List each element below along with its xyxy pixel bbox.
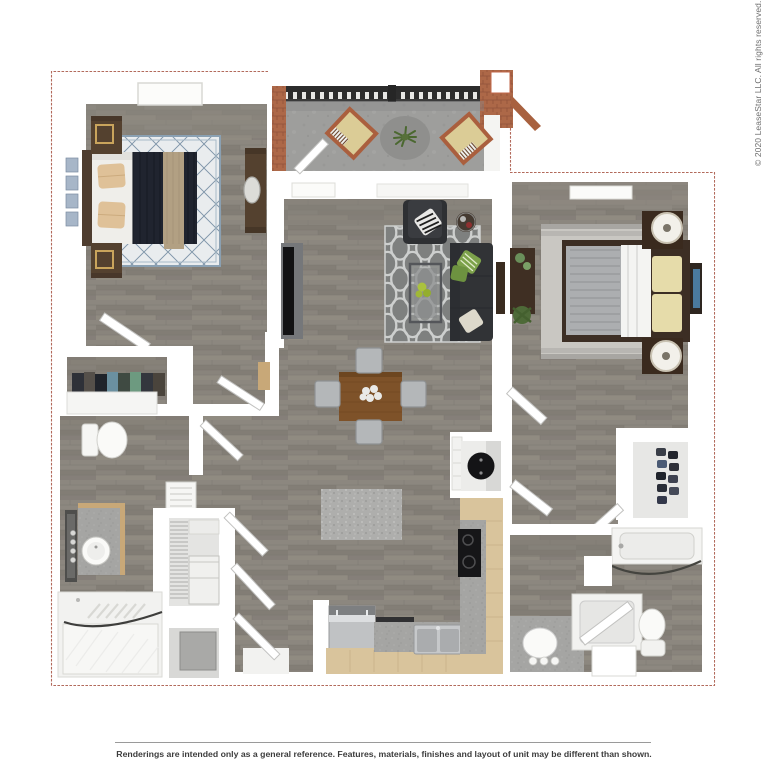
svg-text:Renderings are intended only a: Renderings are intended only as a genera… — [116, 749, 651, 759]
svg-text:© 2020 LeaseStar LLC. All righ: © 2020 LeaseStar LLC. All rights reserve… — [753, 1, 763, 166]
